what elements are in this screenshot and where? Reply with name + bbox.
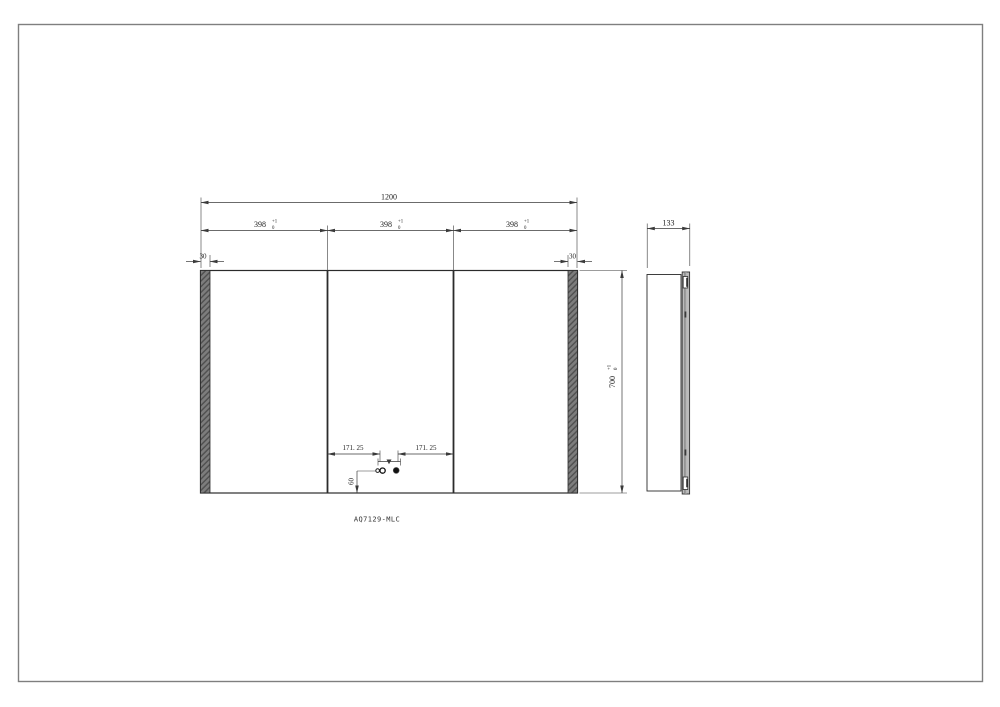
dim-edge-right: 30	[554, 253, 592, 268]
dim-label-section-1: 398	[254, 220, 266, 229]
dim-label-depth: 133	[663, 219, 675, 228]
dim-edge-left: 30	[186, 253, 224, 268]
dim-label-edge-right: 30	[569, 253, 577, 261]
dim-label-section-3: 398	[506, 220, 518, 229]
cabinet-side-body	[647, 275, 681, 492]
technical-drawing-canvas: 1200 398 +1 0 398 +1 0 398 +1 0 30 30	[0, 0, 1000, 707]
dim-label-hole-offset-left: 171. 25	[343, 444, 365, 452]
dim-section-widths: 398 +1 0 398 +1 0 398 +1 0	[201, 220, 577, 271]
tolerance-upper: +1	[272, 220, 278, 225]
dim-label-hole-height: 60	[348, 478, 356, 486]
dim-depth: 133	[647, 219, 690, 269]
side-view	[647, 272, 690, 494]
left-side-panel-hatch	[201, 271, 211, 494]
dim-label-edge-left: 30	[200, 253, 208, 261]
tolerance-upper: +1	[398, 220, 404, 225]
dim-label-overall-height: 700	[608, 376, 617, 388]
tolerance-upper: +1	[524, 220, 530, 225]
right-side-panel-hatch	[568, 271, 578, 494]
bottom-hinge-pin	[686, 479, 687, 488]
dim-label-overall-width: 1200	[381, 193, 397, 202]
dim-label-hole-offset-right: 171. 25	[416, 444, 438, 452]
tolerance-upper: +1	[608, 364, 613, 370]
dim-overall-height: 700 +1 0	[580, 271, 628, 494]
dim-label-section-2: 398	[380, 220, 392, 229]
door-clip-lower	[685, 450, 687, 456]
door-core-layer	[684, 273, 686, 493]
door-clip-upper	[685, 312, 687, 318]
mounting-hole-right	[393, 467, 399, 473]
tolerance-lower: 0	[614, 367, 619, 370]
model-label: AQ7129-MLC	[354, 516, 400, 524]
top-hinge-pin	[686, 278, 687, 287]
